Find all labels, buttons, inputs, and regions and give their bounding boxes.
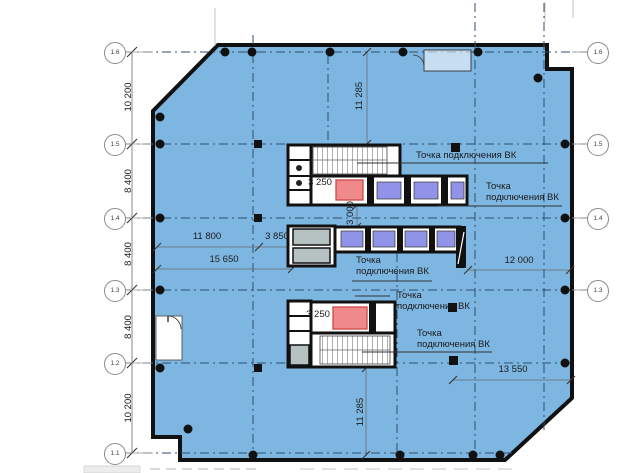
label-vk-low2-line1: Точка — [417, 328, 490, 339]
dim-left-8400-a: 8 400 — [123, 151, 135, 211]
label-vk-low1-line1: Точка — [397, 290, 470, 301]
axis-bubble-left-1-1: 1.1 — [104, 443, 126, 465]
elevator-purple — [437, 231, 455, 247]
elevator-purple — [373, 231, 395, 247]
dim-13550: 13 550 — [483, 364, 543, 375]
dim-11800: 11 800 — [177, 231, 237, 242]
label-vk-mid-line2: подключения ВК — [356, 266, 429, 277]
sheet-artifacts — [84, 466, 520, 473]
label-vk-low1: Точка подключения ВК — [397, 290, 470, 312]
dim-15650: 15 650 — [194, 254, 254, 265]
stairs-upper — [313, 147, 387, 174]
plan-drawing — [0, 0, 638, 473]
room-gray — [293, 248, 330, 263]
elevator-purple — [405, 231, 427, 247]
dim-3250-bottom: 3 250 — [288, 309, 348, 320]
dim-3250-top: 3 250 — [290, 177, 350, 188]
axis-bubble-right-1-3: 1.3 — [587, 280, 609, 302]
label-vk-right: Точка подключения ВК — [486, 181, 559, 203]
label-vk-right-line2: подключения ВК — [486, 192, 559, 203]
dim-3000: 3 000 — [345, 183, 357, 243]
axis-bubble-left-1-6: 1.6 — [104, 42, 126, 64]
dim-left-10200-top: 10 200 — [123, 67, 135, 127]
axis-bubble-right-1-4: 1.4 — [587, 208, 609, 230]
dim-left-10200-bottom: 10 200 — [123, 378, 135, 438]
label-vk-low2-line2: подключения ВК — [417, 339, 490, 350]
label-vk-mid: Точка подключения ВК — [356, 255, 429, 277]
axis-bubble-right-1-6: 1.6 — [587, 42, 609, 64]
floor-plan-canvas: 1.6 1.5 1.4 1.3 1.2 1.1 1.6 1.5 1.4 1.3 … — [0, 0, 638, 473]
witness-lines — [215, 0, 573, 46]
dim-12000: 12 000 — [489, 255, 549, 266]
label-vk-mid-line1: Точка — [356, 255, 429, 266]
elevator-purple — [377, 182, 401, 199]
left-opening — [156, 316, 182, 360]
label-vk-top: Точка подключения ВК — [416, 150, 516, 161]
elevator-purple — [414, 182, 438, 199]
label-vk-right-line1: Точка — [486, 181, 559, 192]
room-gray — [290, 345, 309, 365]
elevator-purple — [451, 182, 464, 199]
dim-left-8400-b: 8 400 — [123, 224, 135, 284]
dim-11285-top: 11 285 — [354, 66, 366, 126]
axis-bubble-right-1-5: 1.5 — [587, 134, 609, 156]
dim-3850: 3 850 — [247, 231, 307, 242]
label-vk-low2: Точка подключения ВК — [417, 328, 490, 350]
dim-11285-bottom: 11 285 — [355, 382, 367, 442]
wc-fixture — [296, 165, 302, 171]
label-vk-low1-line2: подключения ВК — [397, 301, 470, 312]
dim-left-8400-c: 8 400 — [123, 297, 135, 357]
